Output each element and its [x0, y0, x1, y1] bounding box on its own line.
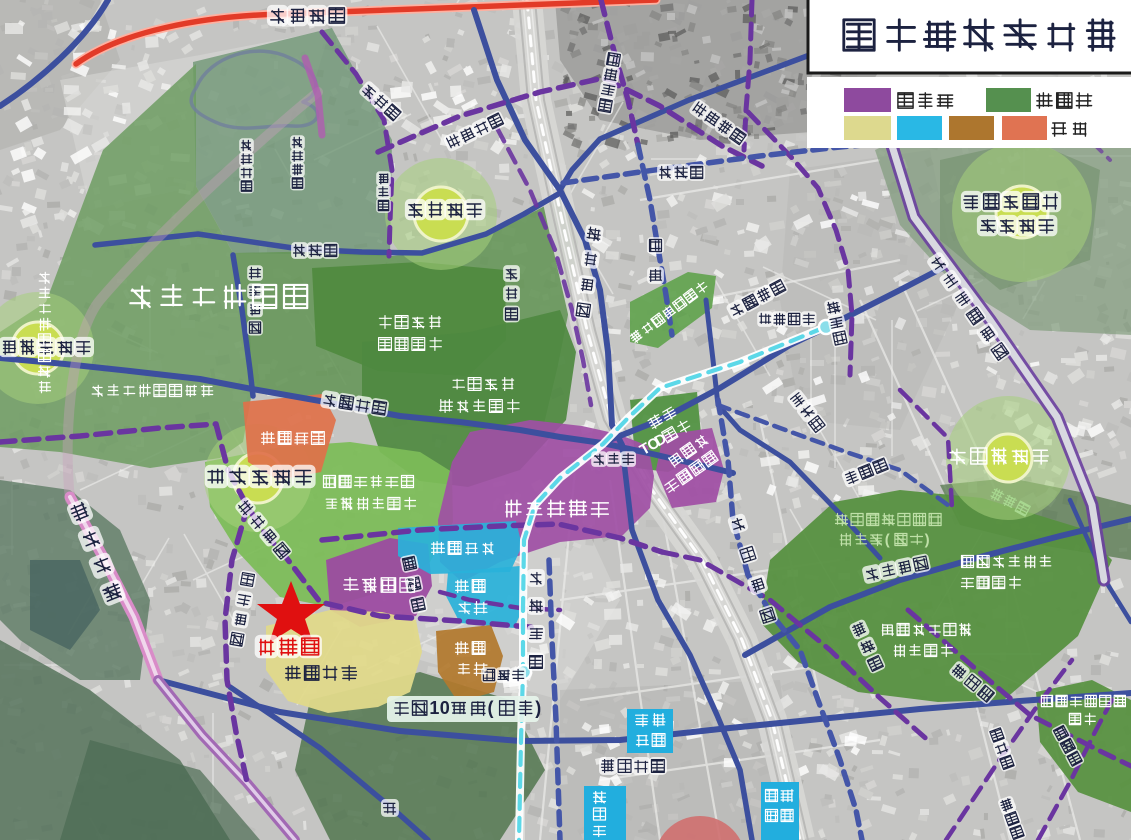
svg-text:): ) — [535, 698, 541, 718]
svg-text:): ) — [925, 531, 930, 548]
svg-text:(: ( — [488, 698, 494, 718]
svg-text:0: 0 — [440, 698, 450, 718]
svg-text:(: ( — [885, 531, 890, 548]
svg-text:1: 1 — [429, 698, 439, 718]
